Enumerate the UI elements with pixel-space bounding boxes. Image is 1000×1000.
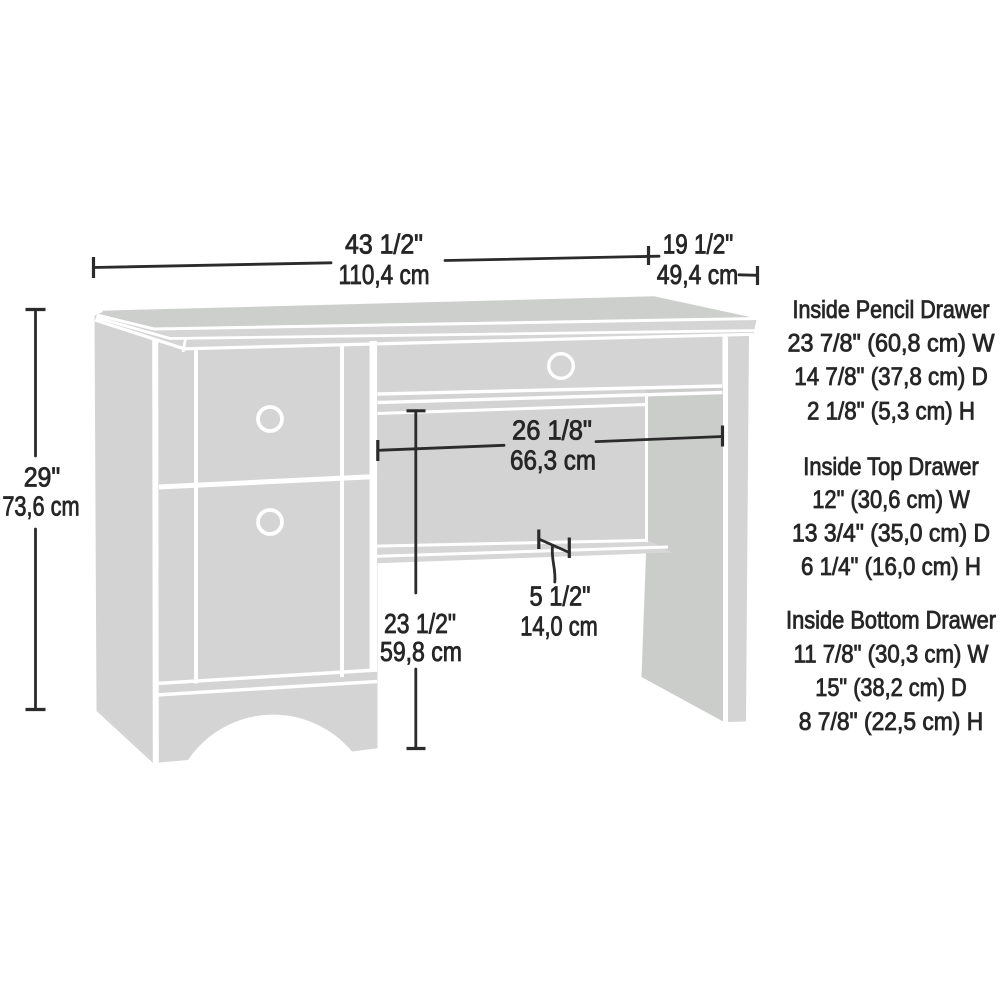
svg-text:12" (30,6 cm) W: 12" (30,6 cm) W bbox=[812, 486, 970, 514]
svg-text:110,4 cm: 110,4 cm bbox=[339, 259, 430, 290]
svg-text:26 1/8": 26 1/8" bbox=[512, 415, 592, 446]
svg-text:14,0 cm: 14,0 cm bbox=[520, 611, 598, 642]
svg-text:5 1/2": 5 1/2" bbox=[530, 581, 591, 612]
svg-text:59,8 cm: 59,8 cm bbox=[380, 636, 462, 667]
svg-text:29": 29" bbox=[24, 462, 61, 493]
svg-text:6 1/4" (16,0 cm) H: 6 1/4" (16,0 cm) H bbox=[801, 553, 981, 581]
svg-text:43 1/2": 43 1/2" bbox=[345, 229, 423, 260]
svg-text:14 7/8" (37,8 cm) D: 14 7/8" (37,8 cm) D bbox=[794, 363, 988, 391]
svg-text:15" (38,2 cm) D: 15" (38,2 cm) D bbox=[815, 674, 967, 702]
svg-text:73,6 cm: 73,6 cm bbox=[2, 491, 79, 522]
svg-text:8 7/8" (22,5 cm) H: 8 7/8" (22,5 cm) H bbox=[799, 708, 984, 736]
svg-text:23 7/8" (60,8 cm) W: 23 7/8" (60,8 cm) W bbox=[788, 329, 995, 357]
svg-text:23 1/2": 23 1/2" bbox=[384, 608, 456, 639]
svg-text:Inside Bottom Drawer: Inside Bottom Drawer bbox=[786, 606, 996, 634]
svg-text:Inside Pencil Drawer: Inside Pencil Drawer bbox=[793, 296, 990, 324]
svg-text:66,3 cm: 66,3 cm bbox=[510, 445, 596, 476]
svg-text:11 7/8" (30,3 cm) W: 11 7/8" (30,3 cm) W bbox=[794, 640, 989, 668]
svg-text:49,4 cm: 49,4 cm bbox=[657, 259, 739, 290]
svg-text:2 1/8" (5,3 cm) H: 2 1/8" (5,3 cm) H bbox=[807, 398, 975, 426]
svg-text:19 1/2": 19 1/2" bbox=[663, 229, 734, 260]
svg-text:13 3/4" (35,0 cm) D: 13 3/4" (35,0 cm) D bbox=[792, 519, 990, 547]
svg-text:Inside Top Drawer: Inside Top Drawer bbox=[803, 453, 979, 481]
